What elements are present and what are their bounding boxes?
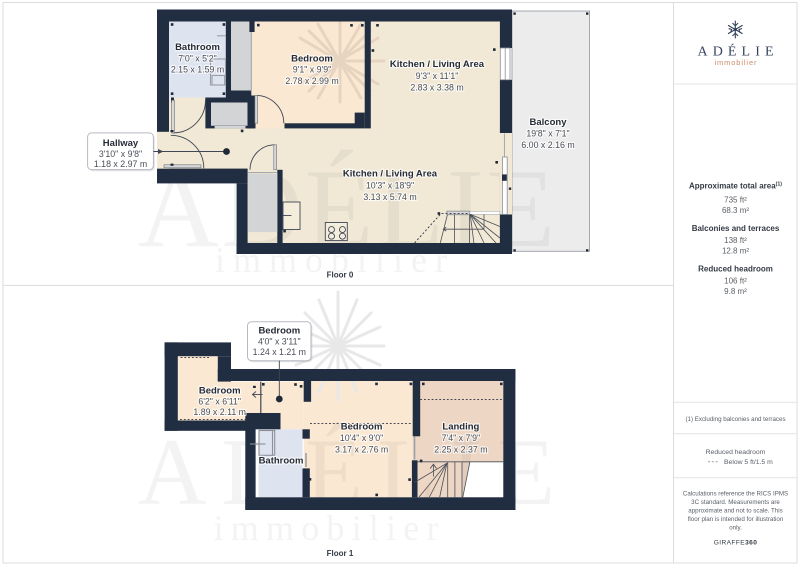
svg-text:Floor 1: Floor 1 [327,549,354,558]
svg-text:4'0" x 3'11": 4'0" x 3'11" [258,337,301,347]
svg-text:9'1" x 9'9": 9'1" x 9'9" [293,65,331,75]
svg-text:Bathroom: Bathroom [259,456,304,467]
svg-text:10'4" x 9'0": 10'4" x 9'0" [340,433,383,443]
svg-text:68.3 m²: 68.3 m² [722,206,749,215]
svg-text:Below 5 ft/1.5 m: Below 5 ft/1.5 m [724,459,773,466]
svg-text:Landing: Landing [442,422,479,433]
svg-text:6.00 x 2.16 m: 6.00 x 2.16 m [521,140,574,150]
svg-text:12.8 m²: 12.8 m² [722,247,749,256]
svg-text:Hallway: Hallway [103,138,139,149]
svg-text:approximate and not to scale.: approximate and not to scale. This [688,508,782,515]
svg-text:1.18 x 2.97 m: 1.18 x 2.97 m [94,159,147,169]
svg-text:immobilier: immobilier [214,508,439,548]
svg-text:Bedroom: Bedroom [341,422,383,433]
svg-text:10'3" x 18'9": 10'3" x 18'9" [366,181,414,191]
svg-text:Kitchen / Living Area: Kitchen / Living Area [390,59,485,70]
svg-text:1.89 x 2.11 m: 1.89 x 2.11 m [193,407,246,417]
svg-text:3.17 x 2.76 m: 3.17 x 2.76 m [335,445,388,455]
svg-text:GIRAFFE360: GIRAFFE360 [714,540,758,547]
svg-text:Balcony: Balcony [530,117,568,128]
svg-text:immobilier: immobilier [715,58,758,67]
svg-text:3C standard. Measurements are: 3C standard. Measurements are [691,499,780,506]
svg-text:6'2" x 6'11": 6'2" x 6'11" [198,397,241,407]
svg-text:7'4" x 7'9": 7'4" x 7'9" [442,433,480,443]
svg-text:735 ft²: 735 ft² [724,196,747,205]
svg-text:Calculations reference the RIC: Calculations reference the RICS IPMS [683,491,788,498]
svg-text:7'0" x 5'2": 7'0" x 5'2" [178,54,216,64]
svg-text:Balconies and terraces: Balconies and terraces [692,224,780,233]
svg-text:3.13 x 5.74 m: 3.13 x 5.74 m [363,192,416,202]
svg-text:3'10" x 9'8": 3'10" x 9'8" [99,149,142,159]
svg-text:19'8" x 7'1": 19'8" x 7'1" [526,129,569,139]
svg-text:Floor 0: Floor 0 [327,271,354,280]
svg-text:1.24 x 1.21 m: 1.24 x 1.21 m [253,347,306,357]
svg-text:2.78 x 2.99 m: 2.78 x 2.99 m [285,76,338,86]
svg-text:2.15 x 1.59 m: 2.15 x 1.59 m [171,65,224,75]
svg-text:Kitchen / Living Area: Kitchen / Living Area [343,169,438,180]
svg-text:Bedroom: Bedroom [199,386,241,397]
svg-text:2.25 x 2.37 m: 2.25 x 2.37 m [434,445,487,455]
svg-text:106 ft²: 106 ft² [724,277,747,286]
svg-text:2.83 x 3.38 m: 2.83 x 3.38 m [410,83,463,93]
svg-text:Bathroom: Bathroom [175,42,220,53]
svg-text:Approximate total area(1): Approximate total area(1) [689,182,782,191]
svg-text:9'3" x 11'1": 9'3" x 11'1" [416,71,459,81]
svg-text:(1) Excluding balconies and te: (1) Excluding balconies and terraces [685,416,785,423]
svg-text:floor plan is intended for ill: floor plan is intended for illustration [688,516,784,523]
svg-text:only.: only. [729,525,742,532]
svg-text:Bedroom: Bedroom [291,54,333,65]
svg-text:138 ft²: 138 ft² [724,236,747,245]
svg-text:Bedroom: Bedroom [258,326,300,337]
svg-text:Reduced headroom: Reduced headroom [706,449,766,456]
svg-text:9.8 m²: 9.8 m² [724,287,747,296]
svg-text:Reduced headroom: Reduced headroom [698,265,773,274]
